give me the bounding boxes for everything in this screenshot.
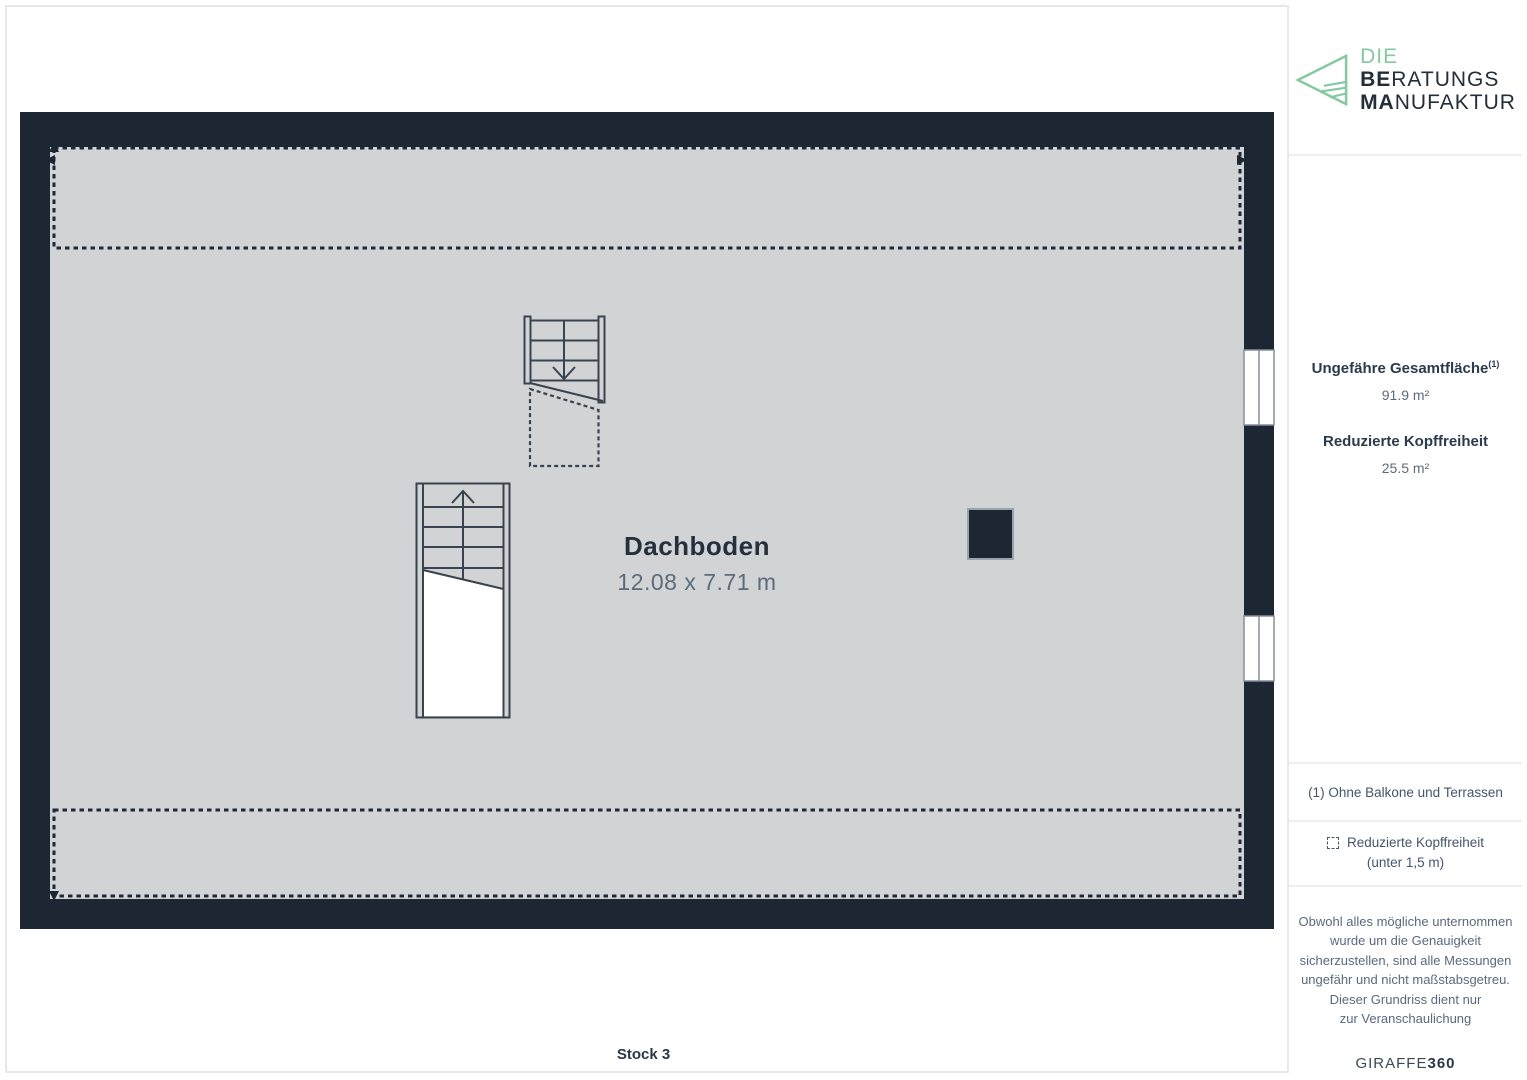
logo-line-manufaktur: MANUFAKTUR (1360, 91, 1516, 114)
legend-section: Reduzierte Kopffreiheit (unter 1,5 m) (1289, 822, 1522, 886)
legend-label: Reduzierte Kopffreiheit (1347, 833, 1484, 853)
logo-line-die: DIE (1360, 45, 1516, 68)
reduced-headroom-label: Reduzierte Kopffreiheit (1289, 433, 1522, 450)
disclaimer-line: zur Veranschaulichung (1289, 1009, 1522, 1029)
logo-line-beratungs: BERATUNGS (1360, 68, 1516, 91)
legend-sublabel: (unter 1,5 m) (1367, 853, 1444, 873)
disclaimer-line: wurde um die Genauigkeit (1289, 931, 1522, 951)
dashed-area-legend-icon (1327, 837, 1339, 849)
logo-section: DIE BERATUNGS MANUFAKTUR (1289, 5, 1522, 156)
company-logo: DIE BERATUNGS MANUFAKTUR (1295, 45, 1516, 114)
total-area-value: 91.9 m² (1289, 387, 1522, 403)
room-dimensions: 12.08 x 7.71 m (497, 569, 897, 596)
total-area-label: Ungefähre Gesamtfläche(1) (1289, 359, 1522, 377)
logo-triangle-icon (1295, 53, 1349, 107)
footnote-text: (1) Ohne Balkone und Terrassen (1308, 785, 1503, 800)
disclaimer-line: sicherzustellen, sind alle Messungen (1289, 951, 1522, 971)
room-name: Dachboden (497, 531, 897, 562)
disclaimer-section: Obwohl alles mögliche unternommen wurde … (1289, 887, 1522, 1074)
reduced-headroom-value: 25.5 m² (1289, 460, 1522, 476)
reduced-headroom-group: Reduzierte Kopffreiheit 25.5 m² (1289, 433, 1522, 476)
giraffe360-brand: GIRAFFE360 (1289, 1054, 1522, 1074)
chimney (968, 509, 1013, 559)
window-lower (1244, 616, 1274, 681)
floor-label: Stock 3 (0, 1046, 1287, 1063)
info-sidebar: DIE BERATUNGS MANUFAKTUR Ungefähre Gesam… (1287, 5, 1522, 1073)
disclaimer-line: Obwohl alles mögliche unternommen (1289, 912, 1522, 932)
disclaimer-line: Dieser Grundriss dient nur (1289, 990, 1522, 1010)
stairwell-void (423, 571, 504, 716)
disclaimer-line: ungefähr und nicht maßstabsgetreu. (1289, 970, 1522, 990)
total-area-group: Ungefähre Gesamtfläche(1) 91.9 m² (1289, 359, 1522, 403)
logo-wordmark: DIE BERATUNGS MANUFAKTUR (1360, 45, 1516, 114)
footnote-section: (1) Ohne Balkone und Terrassen (1289, 764, 1522, 822)
measurements-section: Ungefähre Gesamtfläche(1) 91.9 m² Reduzi… (1289, 156, 1522, 764)
window-upper (1244, 350, 1274, 425)
room-floor (50, 147, 1244, 899)
